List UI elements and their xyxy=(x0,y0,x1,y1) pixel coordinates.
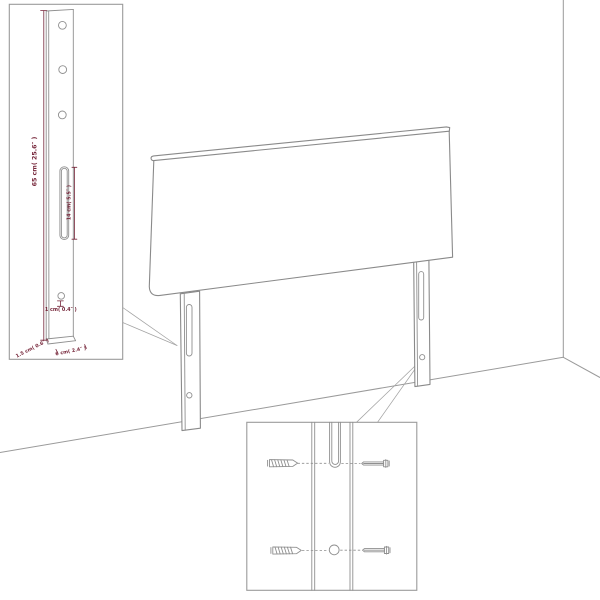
dim-label-hole-offset: 1 cm( 0.4″ ) xyxy=(45,307,77,313)
mounting-hole-icon xyxy=(58,111,66,119)
floor-line-right xyxy=(563,357,600,377)
inset-callout-line xyxy=(123,323,177,346)
mounting-hole-icon xyxy=(59,66,67,74)
mounting-hole-icon xyxy=(420,355,425,360)
right-leg xyxy=(414,260,430,387)
diagram-page: 65 cm( 25.6″ ) 14 cm( 5.5″ ) 1 cm( 0.4″ … xyxy=(0,0,600,600)
headboard-panel xyxy=(149,127,452,296)
screw-detail-inset xyxy=(247,422,417,590)
keyhole-slot-icon xyxy=(186,305,192,357)
left-leg xyxy=(180,291,200,430)
keyhole-slot-icon xyxy=(419,272,424,320)
inset-callout-line xyxy=(123,308,177,346)
mounting-hole-icon xyxy=(329,545,339,555)
callout-lines xyxy=(123,308,422,423)
mounting-hole-icon xyxy=(187,393,192,398)
diagram-canvas: 65 cm( 25.6″ ) 14 cm( 5.5″ ) 1 cm( 0.4″ … xyxy=(0,0,600,600)
dim-label-slot-length: 14 cm( 5.5″ ) xyxy=(67,185,73,220)
dim-label-leg-height: 65 cm( 25.6″ ) xyxy=(32,137,39,187)
mounting-hole-icon xyxy=(58,293,65,300)
leg-detail-inset: 65 cm( 25.6″ ) 14 cm( 5.5″ ) 1 cm( 0.4″ … xyxy=(9,4,122,359)
mounting-hole-icon xyxy=(59,21,67,29)
headboard-front-face xyxy=(149,131,452,295)
